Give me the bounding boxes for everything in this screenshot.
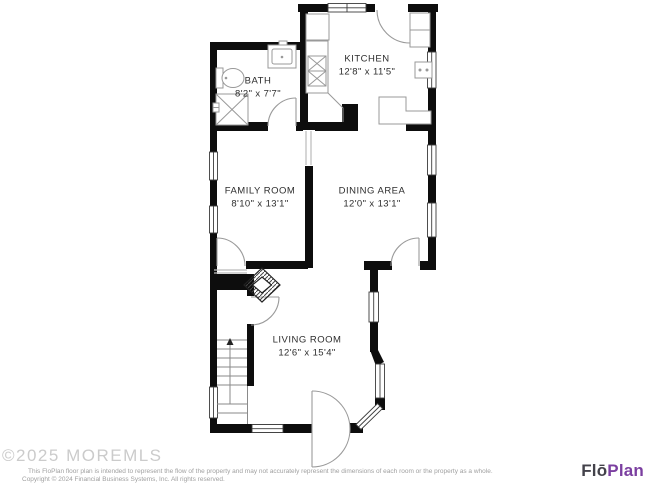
door-kitchen-rear	[377, 10, 410, 43]
room-name: KITCHEN	[339, 54, 396, 67]
door-hall-living	[251, 297, 279, 325]
room-name: FAMILY ROOM	[225, 186, 296, 199]
kitchen-counter-bottom	[379, 97, 431, 124]
stove-icon	[308, 56, 326, 86]
kitchen-sink-icon	[415, 62, 432, 78]
disclaimer-line-2: Copyright © 2024 Financial Business Syst…	[22, 476, 225, 483]
room-label-bath: BATH 8'2" x 7'7"	[235, 76, 281, 101]
door-family	[217, 238, 245, 266]
room-label-family-room: FAMILY ROOM 8'10" x 13'1"	[225, 186, 296, 211]
window-family-left-2	[210, 206, 218, 233]
mls-watermark: ©2025 MOREMLS	[2, 446, 163, 466]
refrigerator-icon	[306, 14, 329, 40]
window-dining-right-2	[428, 203, 437, 237]
room-name: DINING AREA	[339, 186, 406, 199]
floorplan-drawing	[0, 0, 650, 488]
floorplan-page: KITCHEN 12'8" x 11'5" BATH 8'2" x 7'7" F…	[0, 0, 650, 488]
room-label-living-room: LIVING ROOM 12'6" x 15'4"	[273, 335, 342, 360]
window-bay-diagonal	[356, 404, 383, 430]
window-family-left-1	[210, 152, 218, 180]
room-name: BATH	[235, 76, 281, 89]
window-living-east-1	[369, 292, 379, 322]
window-living-bottom	[252, 425, 283, 433]
floplan-logo-plan: Plan	[607, 461, 644, 480]
room-dims: 12'6" x 15'4"	[273, 347, 342, 360]
room-dims: 12'0" x 13'1"	[339, 198, 406, 211]
room-dims: 8'2" x 7'7"	[235, 88, 281, 101]
window-hall-left	[210, 387, 218, 418]
room-label-kitchen: KITCHEN 12'8" x 11'5"	[339, 54, 396, 79]
room-dims: 8'10" x 13'1"	[225, 198, 296, 211]
floplan-logo-flo: Flō	[581, 461, 607, 480]
floplan-logo: FlōPlan	[581, 461, 644, 481]
window-kitchen-top	[328, 4, 366, 13]
window-bay-vertical	[376, 364, 385, 398]
window-dining-right-1	[428, 145, 437, 175]
room-label-dining-area: DINING AREA 12'0" x 13'1"	[339, 186, 406, 211]
bath-sink-icon	[268, 41, 296, 68]
kitchen-cabinets-right	[410, 13, 430, 47]
room-name: LIVING ROOM	[273, 335, 342, 348]
room-dims: 12'8" x 11'5"	[339, 66, 396, 79]
staircase-icon	[217, 338, 248, 424]
disclaimer-line-1: This FloPlan floor plan is intended to r…	[28, 468, 493, 475]
